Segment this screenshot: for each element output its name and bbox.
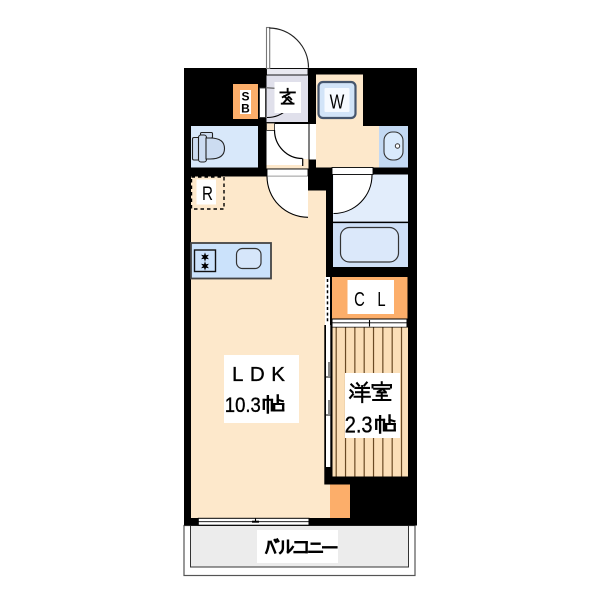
- svg-text:C: C: [354, 288, 365, 311]
- svg-text:L: L: [377, 288, 385, 311]
- svg-text:LDK: LDK: [232, 363, 291, 386]
- svg-text:2.3: 2.3: [345, 411, 373, 438]
- svg-text:10.3: 10.3: [225, 394, 261, 417]
- svg-text:R: R: [202, 182, 213, 204]
- svg-text:W: W: [330, 90, 345, 113]
- svg-text:B: B: [241, 102, 250, 116]
